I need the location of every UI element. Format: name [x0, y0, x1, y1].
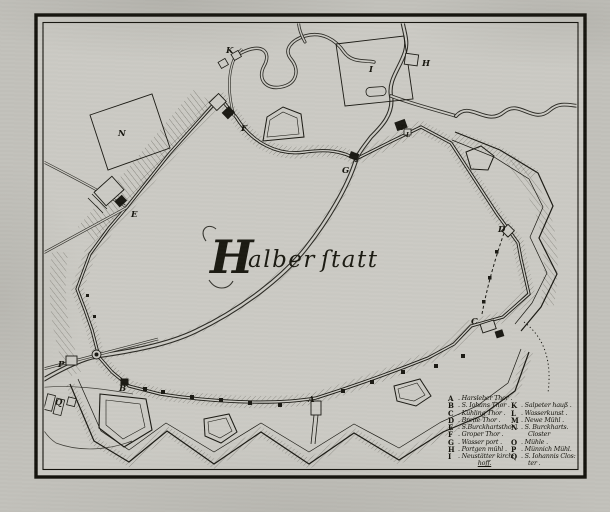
mill-h	[404, 53, 418, 66]
map-marker-E: E	[130, 210, 138, 220]
map-marker-F: F	[240, 124, 248, 134]
legend-key-label: hoff.	[458, 460, 511, 467]
map-marker-L: L	[405, 132, 410, 139]
map-marker-A: A	[307, 395, 315, 405]
map-marker-M: M	[396, 125, 404, 132]
map-marker-C: C	[471, 317, 478, 327]
legend-key-letter	[448, 460, 458, 467]
map-marker-Q: Q	[55, 398, 63, 408]
engraved-map-page: H alber ſtatt ABCDEFGHIKLMNPQ A. Harsleb…	[0, 0, 610, 512]
legend-rows: A. Harsleber Thor .B. S. Iohans Thor .K.…	[448, 395, 576, 468]
map-marker-D: D	[497, 225, 506, 235]
map-marker-G: G	[342, 166, 349, 176]
map-marker-P: P	[57, 360, 65, 370]
map-marker-B: B	[118, 384, 126, 394]
map-marker-H: H	[421, 59, 431, 69]
map-title-rest: alber	[248, 247, 316, 273]
legend-key-letter: N	[511, 424, 521, 431]
legend-row: hoff.ter .	[448, 460, 576, 467]
map-title-part2: ſtatt	[319, 247, 378, 273]
legend-key-label: ter .	[521, 460, 576, 467]
legend: A. Harsleber Thor .B. S. Iohans Thor .K.…	[448, 395, 576, 468]
legend-key-letter: Q	[511, 453, 521, 460]
legend-key-letter: I	[448, 453, 458, 460]
legend-row: I. Neustätter kirch:Q. S. Iohannis Clos:	[448, 453, 576, 460]
legend-key-letter	[511, 460, 521, 467]
map-marker-N: N	[117, 129, 127, 139]
map-marker-K: K	[225, 46, 234, 56]
mill-p	[66, 356, 77, 365]
